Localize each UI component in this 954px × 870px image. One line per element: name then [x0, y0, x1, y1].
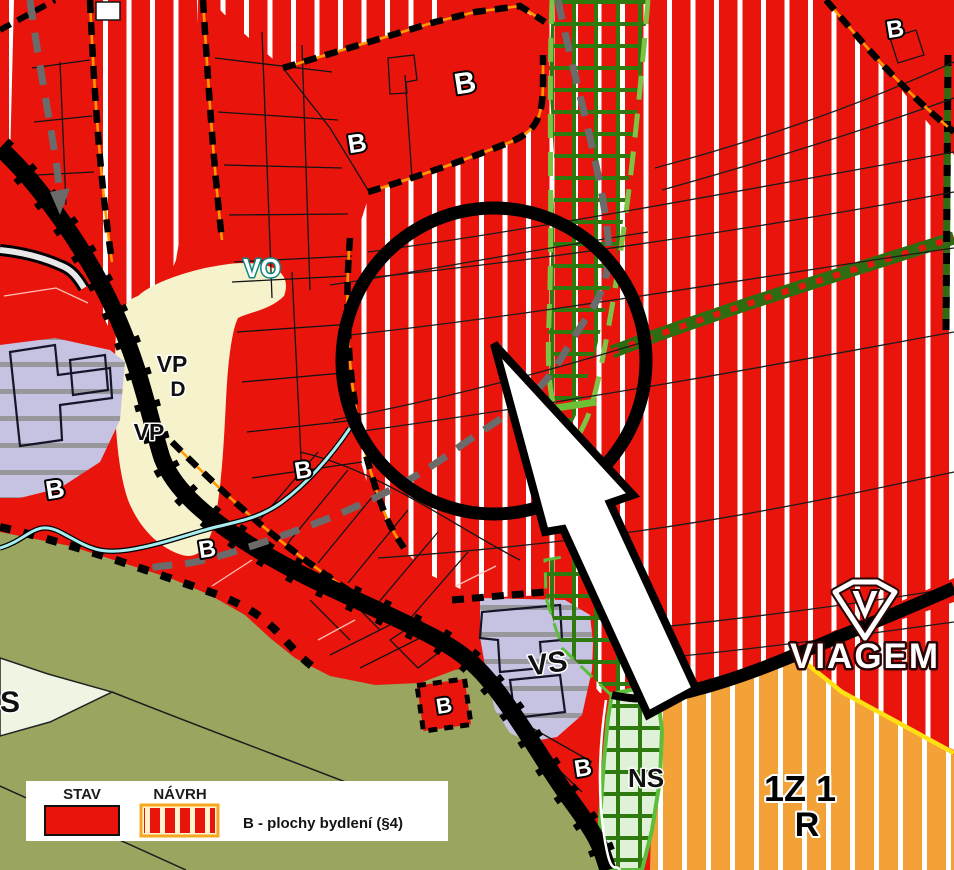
legend-stav-label: STAV — [63, 786, 101, 803]
zone-label-r: R — [795, 806, 820, 844]
zone-label-d: D — [170, 378, 185, 401]
viagem-watermark-text: VIAGEM — [790, 637, 940, 676]
zone-label-vp: VP — [134, 419, 165, 445]
zone-label-vo: VO — [243, 253, 281, 283]
legend-navrh-label: NÁVRH — [153, 786, 206, 803]
zone-label-s: S — [0, 686, 20, 719]
small-white-parcel — [96, 2, 120, 20]
zone-label-vp: VP — [157, 351, 188, 377]
uses-corridor-right-edge — [946, 55, 948, 330]
zoning-map: B B B B B B B B VP D VP VO VS NS S 1Z 1 … — [0, 0, 954, 870]
zone-label-vs: VS — [527, 645, 570, 682]
zoning-map-canvas: B B B B B B B B VP D VP VO VS NS S 1Z 1 … — [0, 0, 954, 870]
legend-stav-swatch — [45, 806, 119, 835]
legend-navrh-swatch — [144, 808, 215, 833]
legend-description: B - plochy bydlení (§4) — [243, 815, 403, 832]
zone-label-1z1: 1Z 1 — [764, 768, 836, 809]
legend: STAV NÁVRH B - plochy bydlení (§4) — [26, 781, 448, 841]
zone-label-ns: NS — [628, 763, 664, 793]
